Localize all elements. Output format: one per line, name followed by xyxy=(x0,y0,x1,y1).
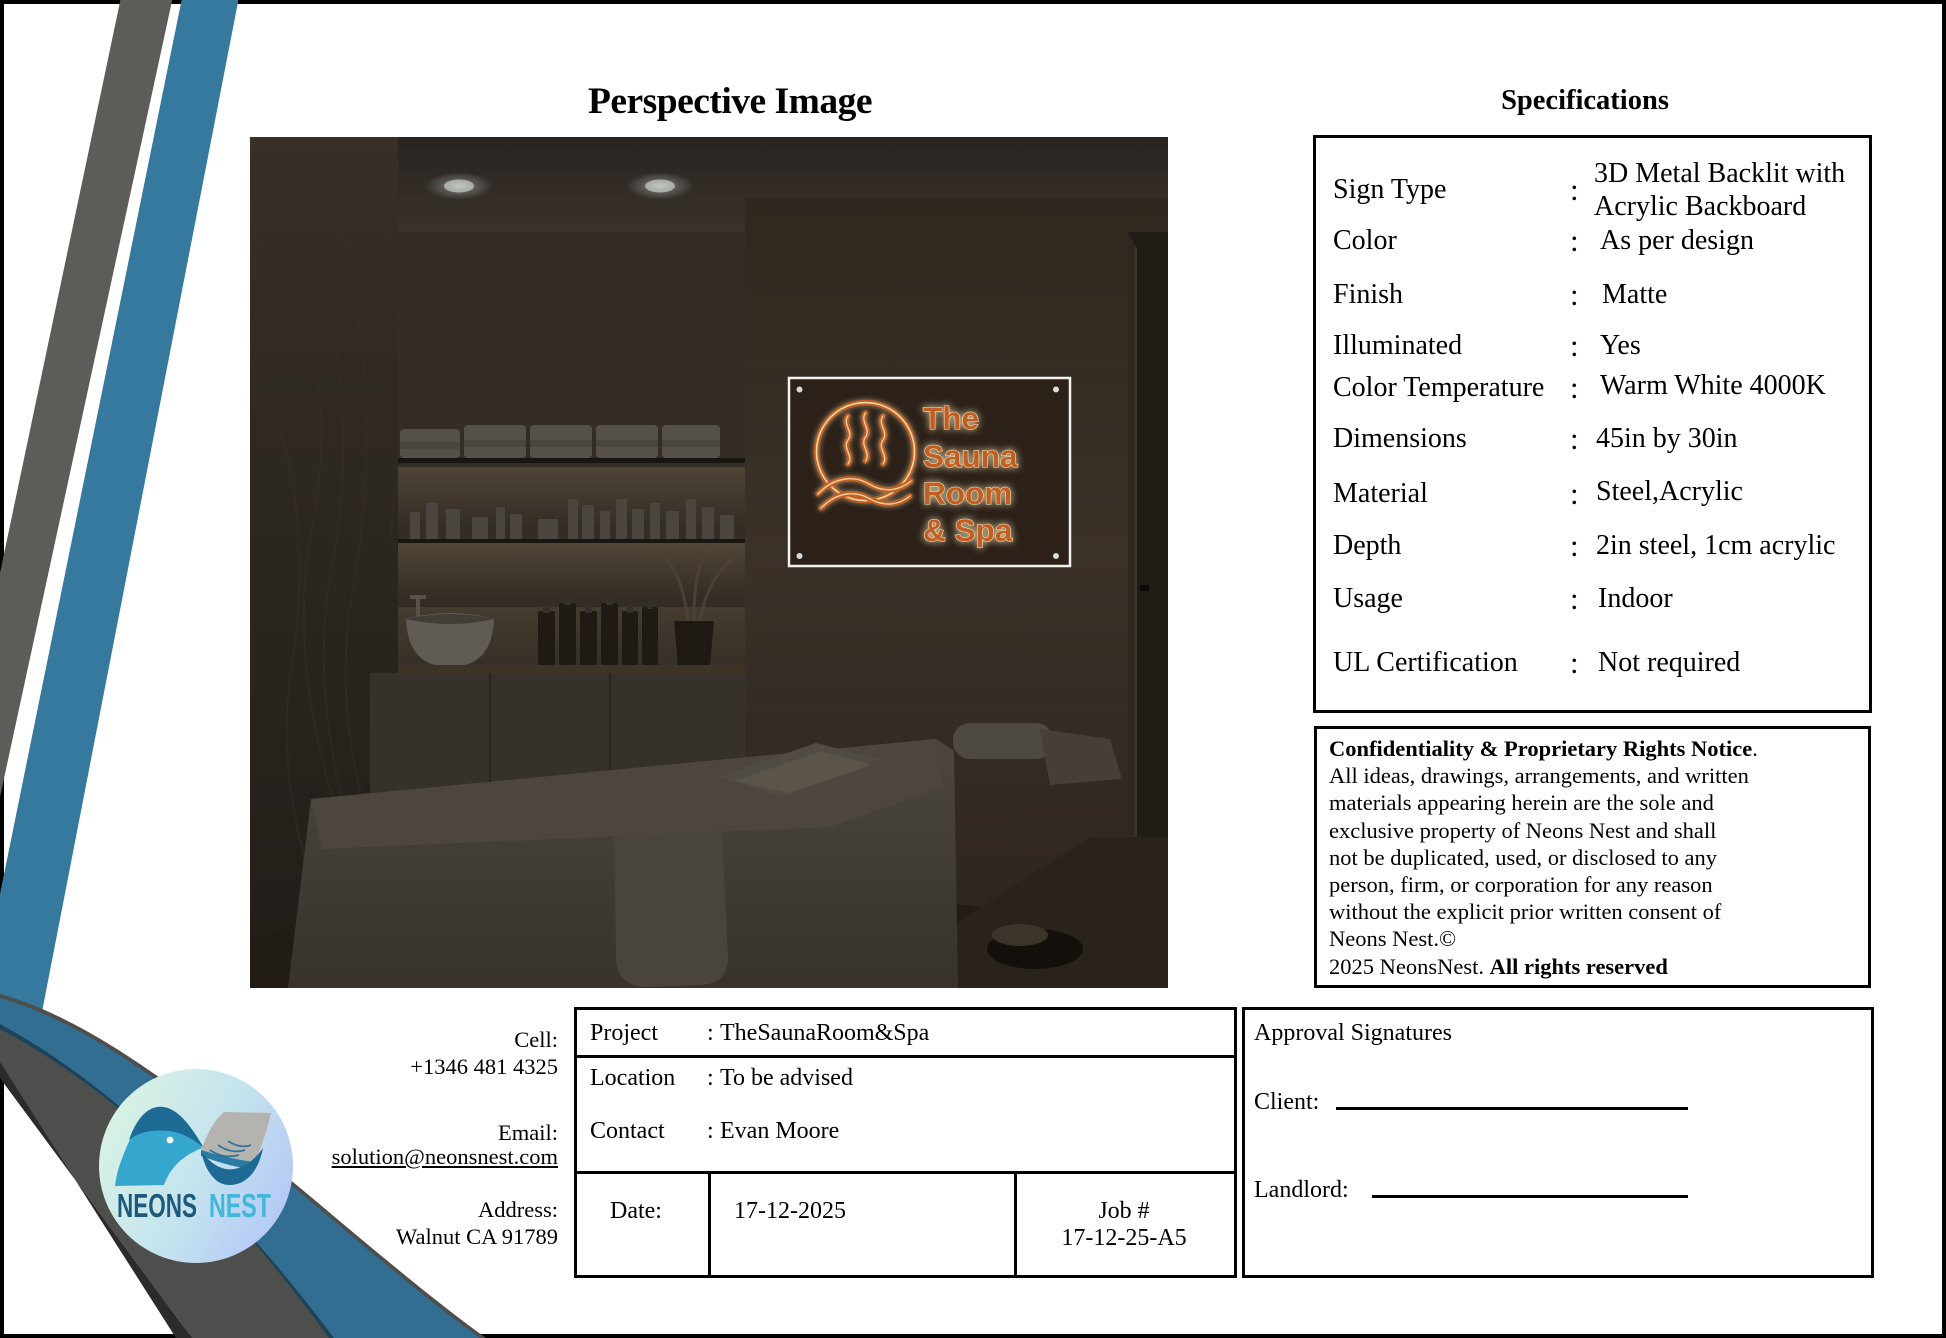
svg-text:NEST: NEST xyxy=(209,1187,271,1224)
svg-text:& Spa: & Spa xyxy=(923,512,1013,548)
svg-text:The: The xyxy=(923,400,979,436)
svg-text:Sauna: Sauna xyxy=(923,438,1018,474)
svg-text:Room: Room xyxy=(923,475,1012,511)
svg-text:NEONS: NEONS xyxy=(117,1187,197,1224)
